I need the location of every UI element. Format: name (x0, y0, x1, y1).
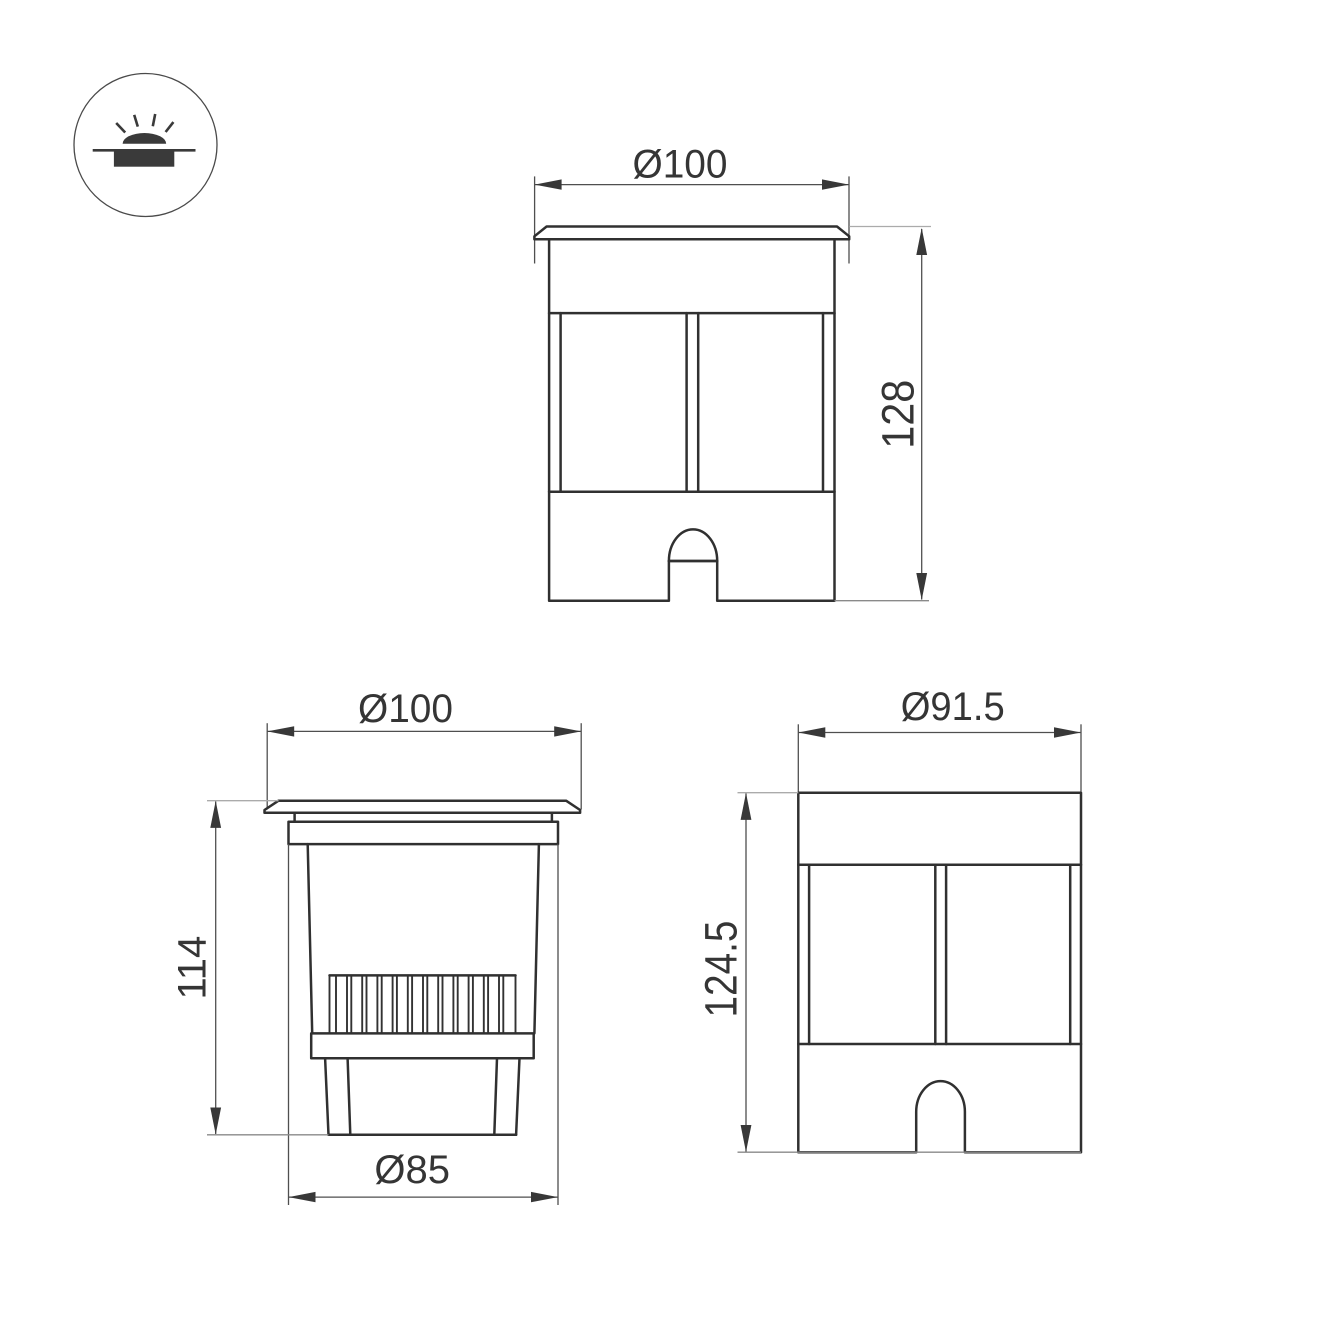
svg-text:124.5: 124.5 (696, 921, 747, 1018)
svg-text:Ø85: Ø85 (374, 1148, 450, 1192)
svg-text:114: 114 (171, 936, 215, 1000)
svg-text:Ø100: Ø100 (633, 142, 728, 186)
svg-text:Ø100: Ø100 (358, 687, 453, 731)
svg-text:Ø91.5: Ø91.5 (901, 685, 1005, 729)
svg-text:128: 128 (873, 380, 924, 449)
